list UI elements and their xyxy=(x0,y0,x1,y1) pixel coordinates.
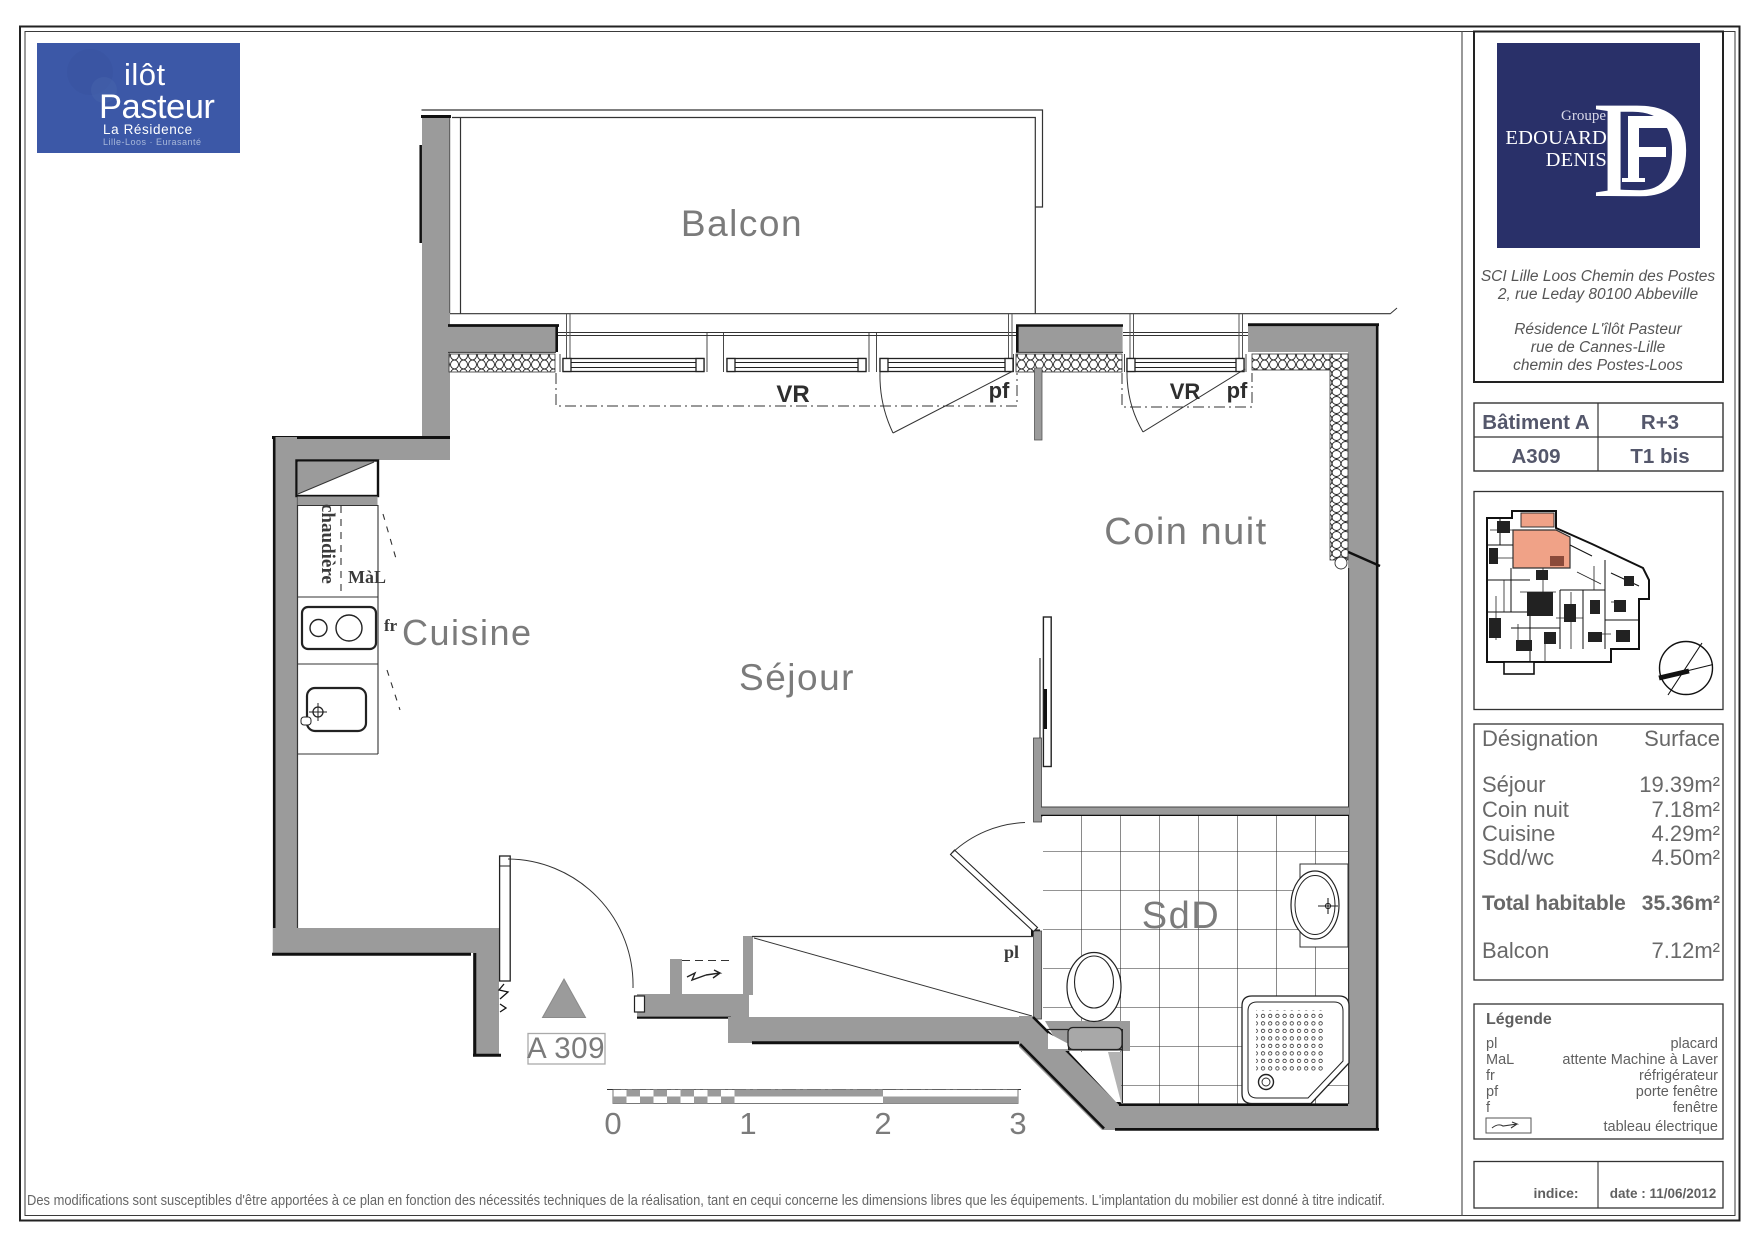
svg-text:placard: placard xyxy=(1670,1036,1718,1052)
svg-text:7.12m²: 7.12m² xyxy=(1652,938,1720,963)
svg-text:date : 11/06/2012: date : 11/06/2012 xyxy=(1610,1186,1717,1201)
svg-text:tableau électrique: tableau électrique xyxy=(1604,1119,1718,1135)
svg-text:Des modifications sont suscept: Des modifications sont susceptibles d'êt… xyxy=(27,1193,1385,1209)
svg-text:0: 0 xyxy=(604,1106,621,1141)
svg-text:3: 3 xyxy=(1009,1106,1026,1141)
svg-text:4.29m²: 4.29m² xyxy=(1652,821,1720,846)
svg-text:Balcon: Balcon xyxy=(681,203,803,244)
svg-text:1: 1 xyxy=(739,1106,756,1141)
svg-text:Bâtiment A: Bâtiment A xyxy=(1482,411,1590,434)
svg-text:4.50m²: 4.50m² xyxy=(1652,845,1720,870)
svg-text:35.36m²: 35.36m² xyxy=(1642,892,1720,915)
svg-text:attente Machine à Laver: attente Machine à Laver xyxy=(1562,1052,1718,1068)
svg-text:Légende: Légende xyxy=(1486,1011,1552,1028)
svg-text:pf: pf xyxy=(989,378,1010,403)
svg-text:ilôt: ilôt xyxy=(124,57,166,92)
svg-text:Balcon: Balcon xyxy=(1482,938,1549,963)
svg-text:indice:: indice: xyxy=(1533,1185,1578,1201)
svg-text:A 309: A 309 xyxy=(527,1032,605,1065)
svg-text:SdD: SdD xyxy=(1142,895,1220,937)
svg-text:SCI Lille Loos Chemin des Post: SCI Lille Loos Chemin des Postes xyxy=(1481,268,1716,285)
svg-text:MaL: MaL xyxy=(1486,1052,1514,1068)
svg-text:pl: pl xyxy=(1486,1036,1497,1052)
svg-text:Coin nuit: Coin nuit xyxy=(1104,511,1267,553)
svg-text:fr: fr xyxy=(384,616,398,635)
svg-text:pf: pf xyxy=(1227,378,1248,403)
svg-text:réfrigérateur: réfrigérateur xyxy=(1639,1068,1718,1084)
svg-text:R+3: R+3 xyxy=(1641,411,1679,434)
svg-text:Total habitable: Total habitable xyxy=(1482,892,1626,915)
svg-text:pf: pf xyxy=(1486,1084,1499,1100)
svg-text:19.39m²: 19.39m² xyxy=(1639,772,1720,797)
svg-text:VR: VR xyxy=(1170,379,1201,404)
svg-text:MàL: MàL xyxy=(348,567,386,587)
svg-text:2, rue Leday 80100 Abbeville: 2, rue Leday 80100 Abbeville xyxy=(1497,286,1699,303)
svg-text:Coin nuit: Coin nuit xyxy=(1482,797,1569,822)
svg-text:Surface: Surface xyxy=(1644,726,1720,751)
svg-text:Cuisine: Cuisine xyxy=(402,612,533,653)
svg-text:Lille-Loos · Eurasanté: Lille-Loos · Eurasanté xyxy=(103,137,202,147)
svg-text:porte fenêtre: porte fenêtre xyxy=(1636,1084,1718,1100)
svg-text:A309: A309 xyxy=(1511,445,1560,468)
svg-text:T1 bis: T1 bis xyxy=(1630,445,1689,468)
svg-text:Désignation: Désignation xyxy=(1482,726,1598,751)
svg-text:rue de Cannes-Lille: rue de Cannes-Lille xyxy=(1531,339,1666,356)
svg-text:VR: VR xyxy=(776,381,809,408)
svg-text:Cuisine: Cuisine xyxy=(1482,821,1555,846)
svg-text:chemin des Postes-Loos: chemin des Postes-Loos xyxy=(1513,357,1683,374)
svg-text:chaudière: chaudière xyxy=(317,504,338,584)
svg-text:7.18m²: 7.18m² xyxy=(1652,797,1720,822)
svg-text:Pasteur: Pasteur xyxy=(99,88,214,126)
svg-text:Résidence L'îlôt Pasteur: Résidence L'îlôt Pasteur xyxy=(1514,321,1682,338)
svg-text:Séjour: Séjour xyxy=(1482,772,1546,797)
svg-text:fenêtre: fenêtre xyxy=(1673,1100,1718,1116)
svg-text:pl: pl xyxy=(1004,942,1019,962)
svg-text:Séjour: Séjour xyxy=(739,657,855,698)
svg-text:2: 2 xyxy=(874,1106,891,1141)
svg-text:Sdd/wc: Sdd/wc xyxy=(1482,845,1554,870)
svg-text:fr: fr xyxy=(1486,1068,1495,1084)
svg-text:La Résidence: La Résidence xyxy=(103,122,193,137)
